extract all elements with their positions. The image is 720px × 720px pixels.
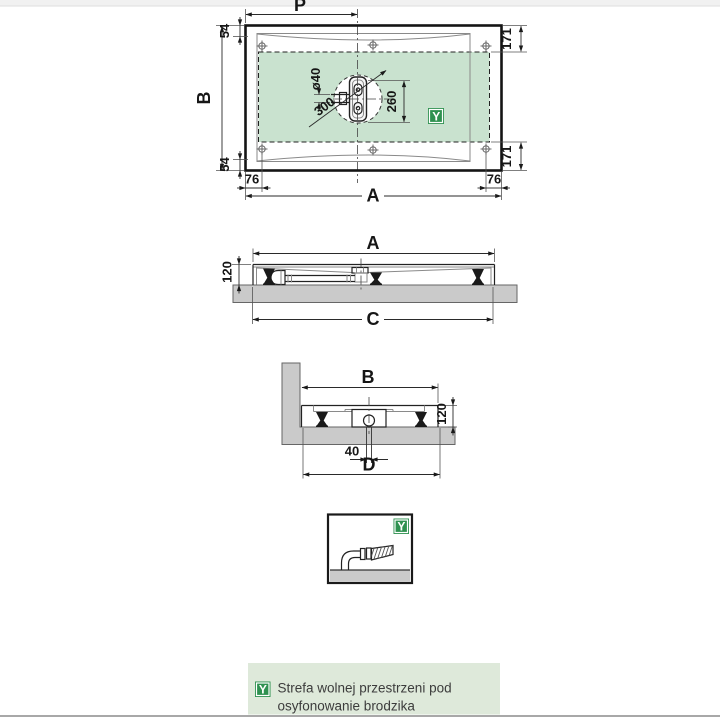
page-top-band — [0, 0, 720, 6]
detail-view: Y — [328, 515, 412, 584]
fixing-mark — [368, 40, 379, 51]
tray-slope-top — [257, 34, 470, 40]
tray-foot — [263, 269, 275, 286]
legend-text-line1: Strefa wolnej przestrzeni pod — [278, 681, 452, 696]
dim-54-top-label: 54 — [217, 23, 232, 38]
dim-40-label: 40 — [345, 444, 359, 459]
dim-54-bottom-label: 54 — [217, 157, 232, 172]
shower-tray-drawing: P B 54 54 171 — [0, 0, 720, 720]
dim-a-front: A — [253, 233, 495, 262]
dim-171-bottom-label: 171 — [499, 146, 514, 168]
side-section-view: B 120 40 D — [282, 363, 457, 479]
dim-b-label: B — [194, 92, 214, 105]
dim-171-bottom: 171 — [491, 142, 527, 171]
fixing-mark — [257, 41, 268, 52]
fixing-mark — [481, 41, 492, 52]
detail-floor — [330, 570, 410, 582]
dim-76-right-label: 76 — [487, 172, 501, 187]
zone-badge-letter: Y — [432, 110, 440, 124]
dim-p-label: P — [294, 0, 306, 15]
front-section-view: A 120 C — [220, 233, 518, 329]
dim-260-label: 260 — [384, 91, 399, 113]
dim-171-top: 171 — [491, 26, 527, 53]
dim-a-front-label: A — [367, 233, 380, 253]
dim-a-top-view: A — [246, 186, 501, 206]
dim-b: B — [194, 26, 244, 171]
tray-slope-bottom — [257, 155, 470, 161]
dim-d-label: D — [363, 455, 376, 475]
drain-flange-front — [352, 268, 368, 274]
legend-badge-letter: Y — [259, 683, 267, 697]
tray-foot — [370, 273, 382, 286]
tray-foot — [415, 412, 427, 427]
dim-c-label: C — [367, 309, 380, 329]
dim-76-left-label: 76 — [245, 172, 259, 187]
fixing-mark — [257, 144, 268, 155]
legend: Y Strefa wolnej przestrzeni pod osyfonow… — [248, 663, 500, 715]
dim-120-front-label: 120 — [220, 261, 235, 283]
technical-drawing-page: P B 54 54 171 — [0, 0, 720, 720]
tray-slope-right — [368, 268, 491, 273]
legend-text-line2: osyfonowanie brodzika — [278, 699, 416, 714]
detail-badge-letter: Y — [397, 520, 405, 534]
dim-a-top-label: A — [367, 186, 380, 206]
floor-slab-front — [233, 285, 517, 303]
tray-foot — [316, 412, 328, 427]
dim-171-top-label: 171 — [499, 28, 514, 50]
top-view: P B 54 54 171 — [194, 0, 527, 206]
dim-b-side-label: B — [362, 367, 375, 387]
dim-120-side-label: 120 — [434, 403, 449, 425]
fixing-mark — [481, 144, 492, 155]
dim-dia40-label: ø40 — [308, 68, 323, 90]
detail-badge: Y — [394, 519, 410, 535]
fixing-mark — [368, 145, 379, 156]
dim-b-side: B — [302, 367, 438, 403]
tray-foot — [472, 269, 484, 285]
free-zone-badge: Y — [428, 108, 444, 124]
